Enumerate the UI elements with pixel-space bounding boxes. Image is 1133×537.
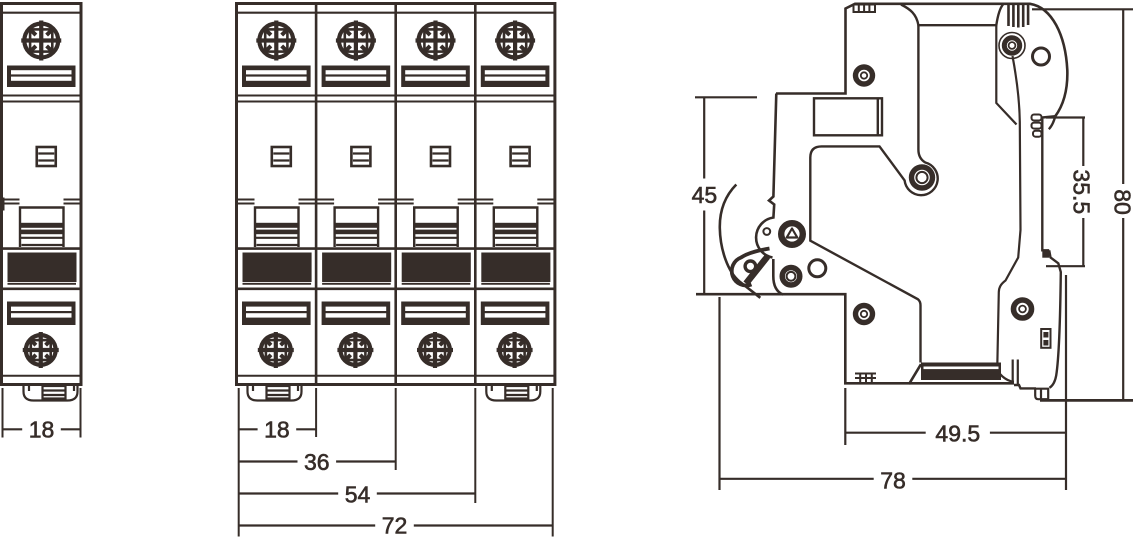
svg-text:80: 80 xyxy=(1109,189,1133,215)
svg-text:36: 36 xyxy=(304,449,330,475)
svg-text:49.5: 49.5 xyxy=(935,421,980,447)
svg-text:18: 18 xyxy=(29,417,55,443)
svg-text:45: 45 xyxy=(692,182,718,208)
svg-text:72: 72 xyxy=(382,513,408,537)
svg-text:35.5: 35.5 xyxy=(1069,169,1095,214)
svg-text:78: 78 xyxy=(880,468,906,494)
svg-text:18: 18 xyxy=(264,417,290,443)
svg-text:54: 54 xyxy=(345,482,371,508)
